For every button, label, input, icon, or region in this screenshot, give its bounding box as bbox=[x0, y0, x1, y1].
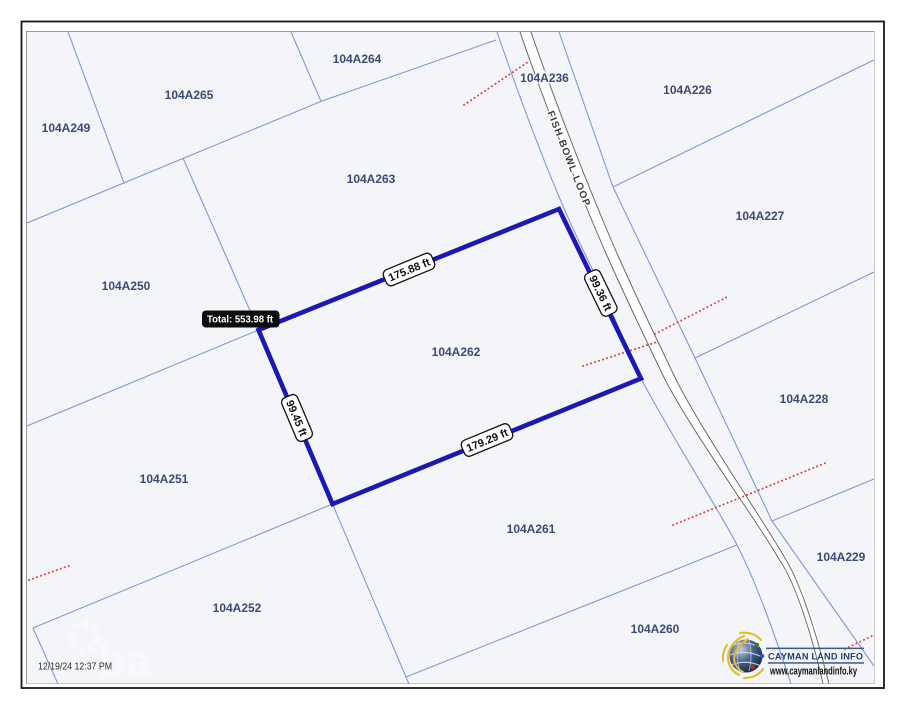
svg-text:104A263: 104A263 bbox=[347, 172, 396, 186]
svg-text:104A229: 104A229 bbox=[817, 550, 866, 564]
svg-text:12/19/24 12:37 PM: 12/19/24 12:37 PM bbox=[38, 661, 112, 673]
svg-text:104A260: 104A260 bbox=[631, 622, 680, 636]
svg-text:104A264: 104A264 bbox=[333, 52, 382, 66]
svg-text:104A265: 104A265 bbox=[165, 88, 214, 102]
svg-text:104A227: 104A227 bbox=[736, 209, 785, 223]
svg-text:104A250: 104A250 bbox=[102, 279, 151, 293]
svg-text:104A236: 104A236 bbox=[520, 71, 569, 85]
svg-text:104A226: 104A226 bbox=[663, 83, 712, 97]
svg-text:104A251: 104A251 bbox=[140, 472, 189, 486]
svg-text:www.caymanlandinfo.ky: www.caymanlandinfo.ky bbox=[769, 666, 857, 678]
svg-text:104A249: 104A249 bbox=[42, 121, 91, 135]
svg-text:104A252: 104A252 bbox=[213, 601, 262, 615]
svg-text:104A262: 104A262 bbox=[432, 345, 481, 359]
svg-text:104A261: 104A261 bbox=[507, 522, 556, 536]
svg-text:Total: 553.98 ft: Total: 553.98 ft bbox=[207, 315, 274, 326]
svg-text:CAYMAN LAND INFO: CAYMAN LAND INFO bbox=[768, 652, 863, 662]
svg-text:104A228: 104A228 bbox=[780, 392, 829, 406]
